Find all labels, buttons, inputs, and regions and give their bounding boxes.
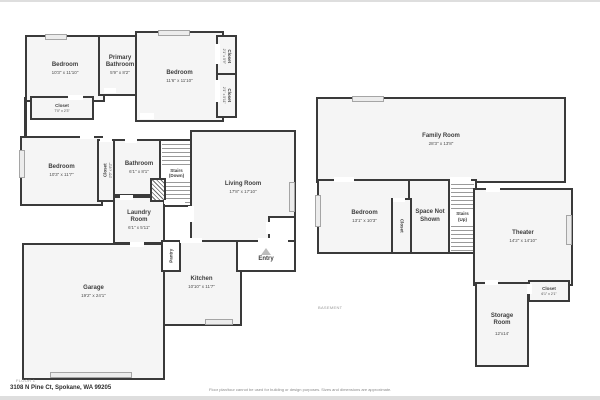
stair-treads [451, 223, 474, 252]
room-dims: 2'1" x 5'11" [221, 87, 225, 104]
room-theater-closet: Closet6'1" x 2'1" [528, 280, 570, 302]
room-dims: 10'3" x 11'7" [49, 172, 73, 177]
room-dims: 5'9" x 8'2" [110, 70, 130, 75]
room-name: Closet [399, 219, 404, 233]
door-opening [527, 284, 532, 294]
room-dims: 6'1" x 8'1" [129, 169, 149, 174]
room-name: Closet [103, 164, 108, 178]
door-opening [258, 238, 288, 243]
room-name: Bedroom [52, 62, 78, 69]
room-basement-closet: Closet [391, 198, 412, 254]
room-name: Laundry Room [123, 210, 155, 224]
room-dims: 12'x14' [495, 331, 509, 336]
room-space-not-shown: Space Not Shown [408, 179, 452, 254]
door-opening [180, 238, 202, 243]
room-name: Living Room [225, 181, 261, 188]
door-opening [130, 242, 144, 247]
room-bedroom-2: Bedroom11'6" x 11'10" [135, 31, 224, 122]
door-opening [104, 88, 116, 93]
door-opening [485, 280, 498, 285]
room-dims: 7'0" x 2'3" [54, 109, 69, 113]
door-opening [393, 198, 405, 202]
room-name: Theater [512, 230, 534, 237]
window-marker [19, 150, 25, 178]
room-name: Kitchen [190, 276, 212, 283]
basement-caption: BASEMENT [318, 305, 342, 310]
room-name: Family Room [422, 133, 460, 140]
door-opening [334, 177, 354, 182]
room-name: Bathroom [125, 161, 153, 168]
window-marker [566, 215, 572, 245]
room-dims: 17'8" x 17'10" [229, 189, 256, 194]
room-dims: 6'1" x 2'1" [541, 292, 556, 296]
room-name: Pantry [168, 249, 173, 263]
door-opening [140, 113, 154, 119]
room-dims: 19'2" x 24'1" [81, 293, 106, 298]
floorplan-canvas: Bedroom10'3" x 11'10" Primary Bathroom5'… [0, 0, 600, 400]
door-opening [164, 200, 185, 204]
room-name: Storage Room [486, 313, 518, 327]
room-dims: 13'1" x 10'3" [352, 218, 377, 223]
room-garage: Garage19'2" x 24'1" [22, 243, 165, 380]
room-name: Closet [226, 49, 231, 63]
room-name: Primary Bathroom [104, 55, 136, 69]
door-opening [125, 138, 137, 143]
door-opening [215, 44, 220, 64]
room-entry: Entry [236, 240, 296, 272]
address-text: 3108 N Pine Ct, Spokane, WA 99205 [10, 385, 111, 391]
room-storage: Storage Room12'x14' [475, 282, 529, 367]
room-dims: 11'6" x 11'10" [166, 78, 193, 83]
door-opening [120, 195, 133, 200]
room-name: Closet [55, 103, 69, 108]
bottom-border [0, 396, 600, 400]
room-dims: 14'2" x 14'10" [509, 238, 536, 243]
room-dims: 28'3" x 13'8" [429, 141, 454, 146]
room-name: Bedroom [351, 210, 377, 217]
room-dims: 10'10" x 11'7" [188, 284, 215, 289]
door-opening [188, 206, 194, 222]
room-dims: 10'3" x 11'10" [52, 70, 79, 75]
entry-arrow-icon [261, 248, 271, 255]
room-bedroom-1: Bedroom10'3" x 11'10" [25, 35, 105, 102]
window-marker [289, 182, 295, 212]
door-opening [215, 80, 220, 102]
floor1-caption: FLOOR 1 [16, 378, 35, 383]
window-marker [315, 195, 321, 227]
room-name: Closet [542, 286, 556, 291]
door-opening [486, 187, 500, 192]
room-name: Garage [83, 285, 104, 292]
room-name: Closet [226, 89, 231, 103]
window-marker [352, 96, 384, 102]
room-theater: Theater14'2" x 14'10" [473, 188, 573, 286]
room-family-room: Family Room28'3" x 13'8" [316, 97, 566, 183]
stair-treads [162, 141, 191, 167]
garage-door-marker [50, 372, 132, 378]
window-marker [158, 30, 190, 36]
room-name: Bedroom [166, 70, 192, 77]
room-name: Space Not Shown [414, 209, 446, 223]
door-opening [80, 134, 94, 139]
utility-hatch-marker [150, 178, 166, 202]
stairs-label: Stairs(Up) [450, 210, 475, 223]
window-marker [45, 34, 67, 40]
room-dims: 6'1" x 5'11" [128, 225, 150, 230]
stair-treads [451, 181, 474, 210]
room-pantry: Pantry [161, 240, 181, 272]
door-opening [266, 222, 270, 234]
room-name: Bedroom [48, 164, 74, 171]
room-dims: 2'1" x 5'9" [221, 48, 225, 63]
wall-segment [24, 97, 27, 138]
room-closet-left: Closet7'0" x 2'3" [30, 96, 94, 120]
window-marker [205, 319, 233, 325]
door-opening [450, 177, 471, 183]
disclaimer-text: Floor plan/tour cannot be used for build… [209, 387, 391, 392]
room-bedroom-3: Bedroom10'3" x 11'7" [20, 136, 103, 206]
door-opening [248, 263, 266, 268]
room-laundry: Laundry Room6'1" x 5'11" [113, 196, 165, 244]
top-border [0, 0, 600, 2]
door-opening [100, 138, 112, 142]
door-opening [68, 95, 83, 100]
